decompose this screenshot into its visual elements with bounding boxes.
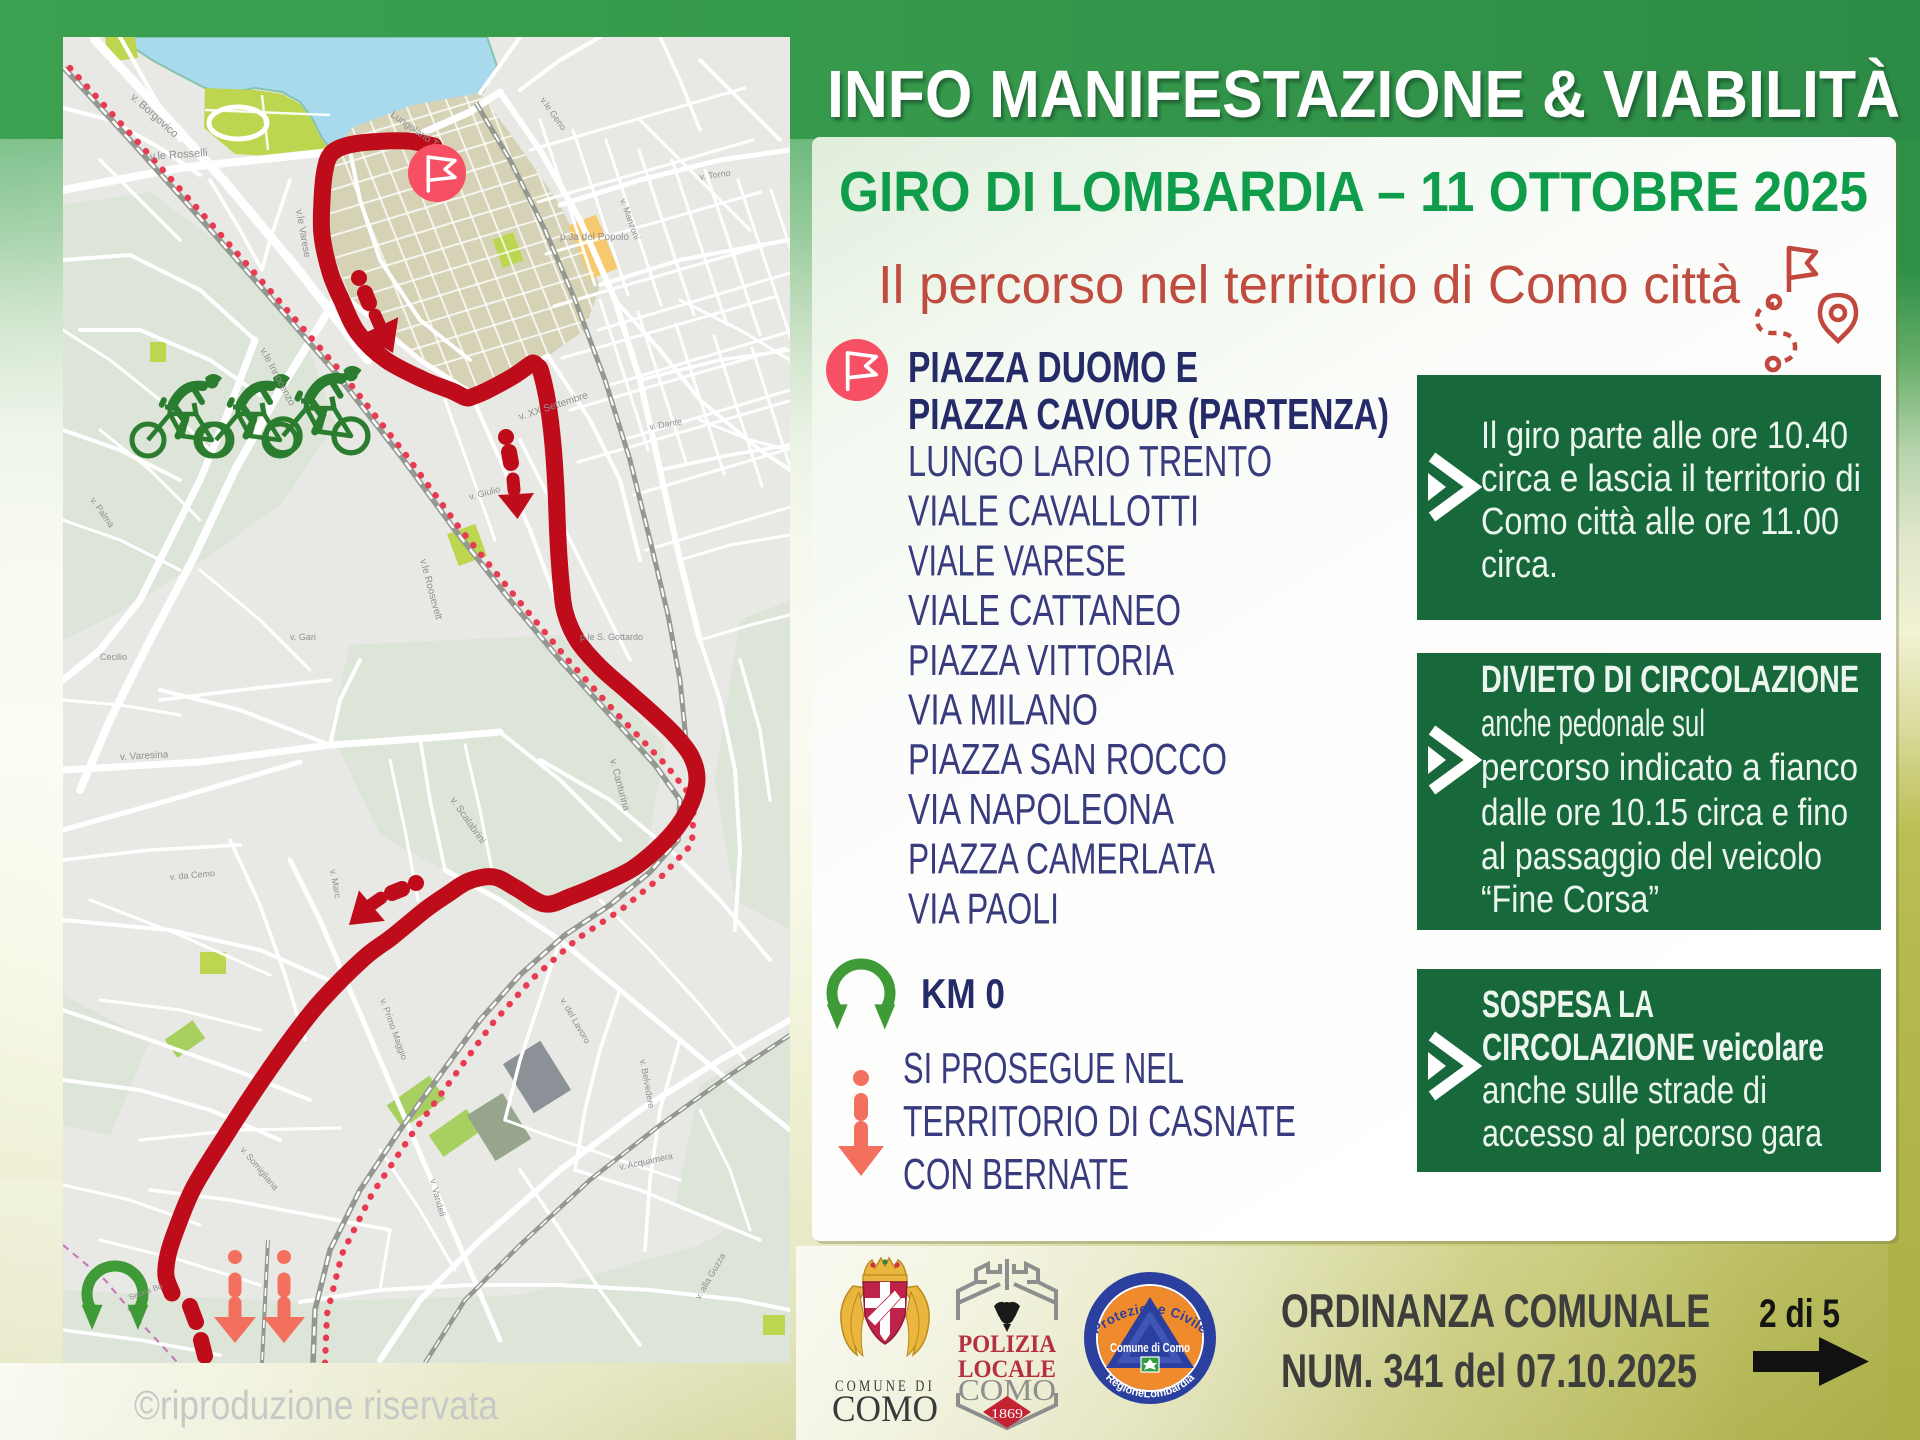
svg-text:anche pedonale sul: anche pedonale sul xyxy=(1481,703,1705,745)
svg-text:VIA PAOLI: VIA PAOLI xyxy=(908,884,1059,933)
svg-text:circa.: circa. xyxy=(1481,544,1558,586)
svg-text:CON BERNATE: CON BERNATE xyxy=(903,1150,1129,1199)
svg-text:Cecilio: Cecilio xyxy=(100,652,127,662)
svg-text:GIRO DI LOMBARDIA – 11 OTTOBRE: GIRO DI LOMBARDIA – 11 OTTOBRE 2025 xyxy=(839,160,1868,224)
svg-text:“Fine Corsa”: “Fine Corsa” xyxy=(1481,879,1659,921)
svg-text:DIVIETO DI CIRCOLAZIONE: DIVIETO DI CIRCOLAZIONE xyxy=(1481,659,1859,701)
svg-text:Il giro parte alle ore 10.40: Il giro parte alle ore 10.40 xyxy=(1481,415,1848,457)
svg-text:SI PROSEGUE NEL: SI PROSEGUE NEL xyxy=(903,1044,1184,1093)
svg-text:percorso indicato a fianco: percorso indicato a fianco xyxy=(1481,747,1858,789)
svg-text:VIALE CATTANEO: VIALE CATTANEO xyxy=(908,586,1181,635)
svg-text:LUNGO LARIO TRENTO: LUNGO LARIO TRENTO xyxy=(908,437,1272,486)
svg-text:2 di 5: 2 di 5 xyxy=(1759,1292,1840,1336)
svg-text:PIAZZA SAN ROCCO: PIAZZA SAN ROCCO xyxy=(908,735,1227,784)
svg-text:v. Gari: v. Gari xyxy=(290,632,316,642)
svg-text:NUM. 341 del 07.10.2025: NUM. 341 del 07.10.2025 xyxy=(1281,1344,1697,1397)
svg-text:SOSPESA LA: SOSPESA LA xyxy=(1482,984,1654,1026)
svg-text:©riproduzione riservata: ©riproduzione riservata xyxy=(134,1382,498,1428)
svg-text:INFO MANIFESTAZIONE & VIABILIT: INFO MANIFESTAZIONE & VIABILITÀ xyxy=(827,57,1900,132)
svg-text:KM 0: KM 0 xyxy=(921,970,1005,1017)
svg-text:accesso al percorso gara: accesso al percorso gara xyxy=(1482,1113,1823,1155)
svg-text:COMO: COMO xyxy=(832,1389,938,1430)
svg-text:p.le S. Gottardo: p.le S. Gottardo xyxy=(580,632,643,642)
svg-text:TERRITORIO DI CASNATE: TERRITORIO DI CASNATE xyxy=(903,1097,1296,1146)
svg-text:Il percorso nel territorio di: Il percorso nel territorio di Como città xyxy=(878,255,1741,315)
svg-text:VIALE CAVALLOTTI: VIALE CAVALLOTTI xyxy=(908,487,1199,536)
svg-text:dalle ore 10.15 circa e fino: dalle ore 10.15 circa e fino xyxy=(1481,792,1848,834)
svg-text:ORDINANZA COMUNALE: ORDINANZA COMUNALE xyxy=(1281,1284,1710,1337)
svg-text:p.Ja del Popolo: p.Ja del Popolo xyxy=(560,232,629,243)
svg-text:POLIZIA: POLIZIA xyxy=(958,1331,1056,1358)
svg-text:CIRCOLAZIONE veicolare: CIRCOLAZIONE veicolare xyxy=(1482,1027,1824,1069)
svg-text:PIAZZA CAMERLATA: PIAZZA CAMERLATA xyxy=(908,835,1215,884)
svg-text:PIAZZA DUOMO E: PIAZZA DUOMO E xyxy=(908,343,1198,392)
svg-text:VIA MILANO: VIA MILANO xyxy=(908,686,1098,735)
svg-text:VIALE VARESE: VIALE VARESE xyxy=(908,536,1126,585)
svg-text:circa e lascia il territorio d: circa e lascia il territorio di xyxy=(1481,458,1861,500)
svg-text:VIA NAPOLEONA: VIA NAPOLEONA xyxy=(908,785,1174,834)
svg-text:al passaggio del veicolo: al passaggio del veicolo xyxy=(1481,836,1822,878)
svg-text:1869: 1869 xyxy=(991,1407,1023,1422)
svg-text:Como città alle ore 11.00: Como città alle ore 11.00 xyxy=(1481,501,1839,543)
svg-text:anche sulle strade di: anche sulle strade di xyxy=(1482,1070,1767,1112)
svg-text:Comune di Como: Comune di Como xyxy=(1110,1341,1190,1355)
svg-text:PIAZZA VITTORIA: PIAZZA VITTORIA xyxy=(908,636,1174,685)
svg-text:PIAZZA CAVOUR (PARTENZA): PIAZZA CAVOUR (PARTENZA) xyxy=(908,390,1389,439)
